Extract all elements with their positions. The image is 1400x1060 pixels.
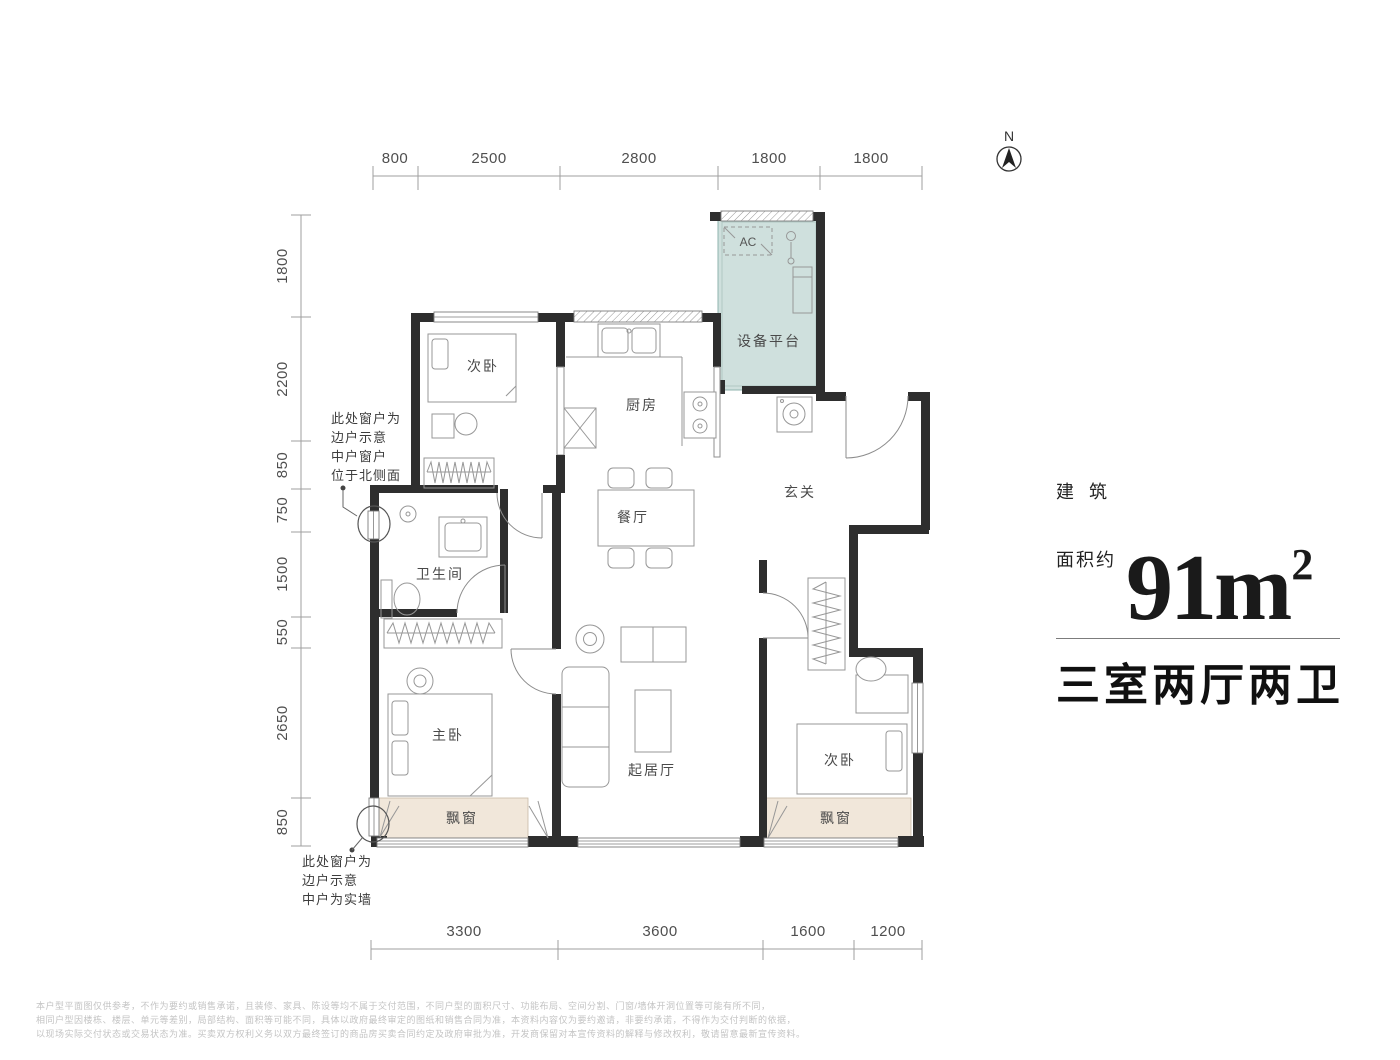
door-master-bedroom <box>511 649 556 694</box>
disclaimer-line2: 相同户型因楼栋、楼层、单元等差别，局部结构、面积等可能不同，具体以政府最终审定的… <box>36 1014 996 1028</box>
dimension-chain-top: 800 2500 2800 1800 1800 <box>373 150 922 190</box>
dimension-chain-left: 1800 2200 850 750 1500 550 2650 850 <box>274 215 311 846</box>
dim-bottom-1600: 1600 <box>790 923 825 940</box>
kitchen-counter <box>564 324 716 448</box>
compass-needle <box>1002 148 1016 168</box>
floor-plan-page: 800 2500 2800 1800 1800 1800 2200 850 75… <box>0 0 1400 1060</box>
washing-machine <box>777 397 812 432</box>
bed-master <box>388 694 492 796</box>
area-value: 91m2 <box>1126 551 1310 626</box>
window-bay-right <box>764 838 898 847</box>
room-label-living: 起居厅 <box>628 762 676 778</box>
dim-bottom-3300: 3300 <box>446 923 481 940</box>
annotation-line: 此处窗户为 <box>331 411 401 426</box>
desk-south <box>856 657 908 713</box>
door-bathroom <box>457 565 505 613</box>
dim-left-850a: 850 <box>274 452 291 479</box>
area-panel: 建 筑 面积约 91m2 三室两厅两卫 <box>1056 436 1342 713</box>
window-platform-hatch <box>721 211 813 221</box>
window-kitchen-hatch <box>574 311 702 322</box>
dim-left-550: 550 <box>274 619 291 646</box>
annotation-line: 中户为实墙 <box>302 892 372 907</box>
room-label-bedroom-south: 次卧 <box>824 752 856 768</box>
disclaimer-line3: 以现场实际交付状态或交易状态为准。买卖双方权利义务以双方最终签订的商品房买卖合同… <box>36 1028 996 1042</box>
disclaimer: 本户型平面图仅供参考，不作为要约或销售承诺，且装修、家具、陈设等均不属于交付范围… <box>36 1000 996 1042</box>
dim-left-1800: 1800 <box>274 248 291 283</box>
disclaimer-line1: 本户型平面图仅供参考，不作为要约或销售承诺，且装修、家具、陈设等均不属于交付范围… <box>36 1000 996 1014</box>
window-bedroom-north <box>434 312 538 322</box>
floor-plan-svg: 800 2500 2800 1800 1800 1800 2200 850 75… <box>255 115 1045 980</box>
dim-top-1800a: 1800 <box>751 150 786 167</box>
annotation-line: 边户示意 <box>302 873 358 888</box>
leader-dot <box>341 486 346 491</box>
dim-top-2800: 2800 <box>621 150 656 167</box>
nightstand-north <box>432 414 454 438</box>
dim-left-850b: 850 <box>274 809 291 836</box>
dim-top-1800b: 1800 <box>853 150 888 167</box>
stool-north <box>455 413 477 435</box>
room-label-bedroom-north: 次卧 <box>467 358 499 374</box>
dim-top-800: 800 <box>382 150 409 167</box>
dim-left-2650: 2650 <box>274 705 291 740</box>
area-superscript: 2 <box>1291 540 1310 589</box>
room-label-bay-right: 飘窗 <box>820 810 852 826</box>
north-arrow: N <box>997 128 1021 171</box>
kitchen-shaft <box>564 408 596 448</box>
wardrobe-south <box>808 578 845 670</box>
kitchen-stove <box>684 392 716 438</box>
area-prefix: 建 筑 面积约 <box>1056 436 1126 626</box>
room-label-bay-left: 飘窗 <box>446 810 478 826</box>
area-prefix-line2: 面积约 <box>1056 549 1126 572</box>
wardrobe-north <box>424 458 494 488</box>
window-living-south <box>578 838 740 847</box>
ac-label: AC <box>740 235 757 249</box>
door-entry <box>846 396 908 458</box>
floor-drain <box>400 506 416 522</box>
annotation-line: 此处窗户为 <box>302 854 372 869</box>
annotation-north-window: 此处窗户为 边户示意 中户窗户 位于北侧面 <box>331 411 401 542</box>
door-bedroom-south <box>763 593 808 638</box>
wardrobe-master <box>384 619 502 648</box>
room-label-kitchen: 厨房 <box>626 397 658 413</box>
annotation-line: 边户示意 <box>331 430 387 445</box>
window-bedroom-south <box>912 683 923 753</box>
annotation-line: 位于北侧面 <box>331 468 401 483</box>
equipment-platform-zone <box>718 218 820 390</box>
dim-left-2200: 2200 <box>274 361 291 396</box>
dim-bottom-3600: 3600 <box>642 923 677 940</box>
window-bathroom-left <box>368 511 379 539</box>
tv-cabinet <box>621 627 686 662</box>
room-label-dining: 餐厅 <box>617 509 649 525</box>
annotation-line: 中户窗户 <box>331 449 387 464</box>
floor-lamp <box>576 625 604 653</box>
room-label-equipment-platform: 设备平台 <box>737 333 801 349</box>
dim-top-2500: 2500 <box>471 150 506 167</box>
room-label-foyer: 玄关 <box>784 484 816 500</box>
layout-type: 三室两厅两卫 <box>1056 649 1342 713</box>
dim-left-1500: 1500 <box>274 556 291 591</box>
dimension-chain-bottom: 3300 3600 1600 1200 <box>371 923 922 960</box>
coffee-table <box>635 690 671 752</box>
dim-left-750: 750 <box>274 497 291 524</box>
round-table-master <box>407 668 433 694</box>
north-label: N <box>1004 128 1014 144</box>
room-label-master-bedroom: 主卧 <box>432 727 464 743</box>
dim-bottom-1200: 1200 <box>870 923 905 940</box>
bathroom-fixtures <box>381 506 487 618</box>
room-label-bathroom: 卫生间 <box>416 566 464 582</box>
area-prefix-line1: 建 筑 <box>1056 481 1126 504</box>
sofa <box>562 667 609 787</box>
